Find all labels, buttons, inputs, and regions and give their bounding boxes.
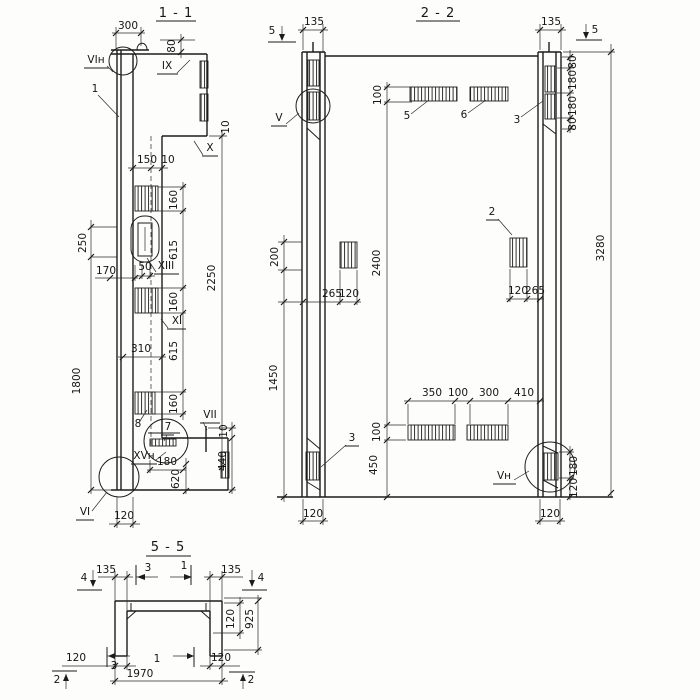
- cut-marker-4-right: 4: [258, 572, 265, 584]
- cut-marker-5-right: 5: [592, 24, 599, 36]
- cut-marker-1-bottom: 1: [154, 653, 161, 665]
- dim-100-c: 100: [371, 422, 383, 442]
- label-vi-n: VIн: [87, 54, 104, 66]
- dim-450: 450: [368, 455, 380, 475]
- dim-120-c: 120: [568, 478, 580, 498]
- dim-80-b: 80: [567, 117, 579, 130]
- opening-detail: [131, 216, 159, 262]
- dim-150: 150: [137, 154, 157, 166]
- dim-300-top: 300: [118, 20, 138, 32]
- embedded-plate: [545, 94, 556, 119]
- drawing-sheet: 1 - 1 300 80 VIн 1 IX 10 X 150 10 160 61…: [0, 0, 700, 700]
- cut-marker-1-top: 1: [181, 560, 188, 572]
- label-ix: IX: [162, 60, 172, 72]
- label-pos-8: 8: [135, 418, 142, 430]
- section-5-5-outline: [115, 601, 222, 656]
- embedded-plate: [308, 60, 319, 86]
- label-xi: XI: [172, 315, 182, 327]
- dim-180-c: 180: [568, 456, 580, 476]
- cut-marker-5-left: 5: [269, 25, 276, 37]
- weld-strip: [150, 439, 176, 446]
- dim-250: 250: [77, 233, 89, 253]
- dim-200: 200: [269, 247, 281, 267]
- embedded-plate: [135, 288, 158, 313]
- label-vi: VI: [80, 506, 90, 518]
- dim-440: 440: [217, 451, 229, 471]
- dim-615-a: 615: [168, 240, 180, 260]
- embedded-plate: [306, 452, 319, 480]
- dim-160-c: 160: [168, 394, 180, 414]
- dim-120-bottom-left: 120: [303, 508, 323, 520]
- dim-265-b: 265: [525, 285, 545, 297]
- cut-marker-2-left: 2: [54, 674, 61, 686]
- dim-1450: 1450: [268, 365, 280, 392]
- dim-160-a: 160: [168, 190, 180, 210]
- dim-3280: 3280: [595, 235, 607, 262]
- embedded-plate: [135, 186, 158, 211]
- dim-1800: 1800: [71, 368, 83, 395]
- edge-plate: [200, 61, 208, 88]
- section-2-2-outline: [277, 42, 613, 497]
- dim-120: 120: [114, 510, 134, 522]
- label-pos-6: 6: [461, 109, 468, 121]
- cut-marker-4-left: 4: [81, 572, 88, 584]
- label-pos-3-bottom: 3: [349, 432, 356, 444]
- cut-marker-3-bottom: 3: [111, 660, 118, 672]
- dim-180: 180: [157, 456, 177, 468]
- embedded-plate: [545, 66, 556, 92]
- embedded-plate: [543, 453, 558, 480]
- label-pos-2: 2: [489, 206, 496, 218]
- dim-120-leg-right: 120: [211, 652, 231, 664]
- dim-50: 50: [138, 261, 151, 273]
- label-pos-1: 1: [92, 83, 99, 95]
- embedded-plate: [308, 92, 319, 120]
- dim-100-a: 100: [372, 85, 384, 105]
- dim-2250: 2250: [206, 265, 218, 292]
- dim-100-b: 100: [448, 387, 468, 399]
- embedded-plate-2: [510, 238, 527, 267]
- dim-135-right: 135: [221, 564, 241, 576]
- embedded-plate: [467, 425, 508, 440]
- label-pos-3-top: 3: [514, 114, 521, 126]
- section-5-5: 5 - 5 4 135 3 1 135 4 120 925 120 3 1 12…: [52, 540, 267, 689]
- dim-410: 410: [514, 387, 534, 399]
- dim-120-slab: 120: [225, 609, 237, 629]
- dim-615-b: 615: [168, 341, 180, 361]
- dim-10-c: 10: [218, 424, 230, 437]
- dim-300: 300: [479, 387, 499, 399]
- edge-plate: [200, 94, 208, 121]
- dim-120-a: 120: [339, 288, 359, 300]
- dim-1970: 1970: [127, 668, 154, 680]
- label-v: V: [275, 112, 283, 124]
- dim-310: 310: [131, 343, 151, 355]
- label-vii: VII: [203, 409, 216, 421]
- dim-135-right: 135: [541, 16, 561, 28]
- label-pos-5: 5: [404, 110, 411, 122]
- dim-135-left: 135: [304, 16, 324, 28]
- dim-180-b: 180: [567, 96, 579, 116]
- section-title-5-5: 5 - 5: [151, 540, 186, 555]
- dim-10-a: 10: [220, 120, 232, 133]
- dim-2400: 2400: [371, 250, 383, 277]
- drawing-canvas: 1 - 1 300 80 VIн 1 IX 10 X 150 10 160 61…: [0, 0, 700, 700]
- dim-180-a: 180: [567, 70, 579, 90]
- dim-80-a: 80: [567, 55, 579, 68]
- dim-170: 170: [96, 265, 116, 277]
- label-v-n: Vн: [497, 470, 511, 482]
- dim-120-leg-left: 120: [66, 652, 86, 664]
- dim-620: 620: [170, 469, 182, 489]
- cut-marker-2-right: 2: [248, 674, 255, 686]
- dim-10-b: 10: [161, 154, 174, 166]
- dim-160-b: 160: [168, 292, 180, 312]
- dim-925: 925: [244, 609, 256, 629]
- dim-350: 350: [422, 387, 442, 399]
- embedded-plate: [340, 242, 357, 268]
- label-x: X: [206, 142, 213, 154]
- embedded-plate: [408, 425, 455, 440]
- section-title-2-2: 2 - 2: [421, 6, 456, 21]
- embedded-plate: [135, 392, 155, 414]
- cut-marker-3-top: 3: [145, 562, 152, 574]
- dim-135-left: 135: [96, 564, 116, 576]
- section-2-2: 2 - 2 5 135 V 100 5 6 3 135 5 80 180 180…: [268, 6, 615, 525]
- dim-80: 80: [166, 39, 178, 52]
- label-xv-n: XVн: [133, 450, 154, 462]
- dim-120-bottom-right: 120: [540, 508, 560, 520]
- embedded-plate-5: [410, 87, 457, 101]
- embedded-plate-6: [470, 87, 508, 101]
- section-title-1-1: 1 - 1: [159, 6, 194, 21]
- section-1-1: 1 - 1 300 80 VIн 1 IX 10 X 150 10 160 61…: [71, 6, 236, 528]
- label-pos-7: 7: [165, 421, 172, 433]
- label-xiii: XIII: [158, 260, 174, 272]
